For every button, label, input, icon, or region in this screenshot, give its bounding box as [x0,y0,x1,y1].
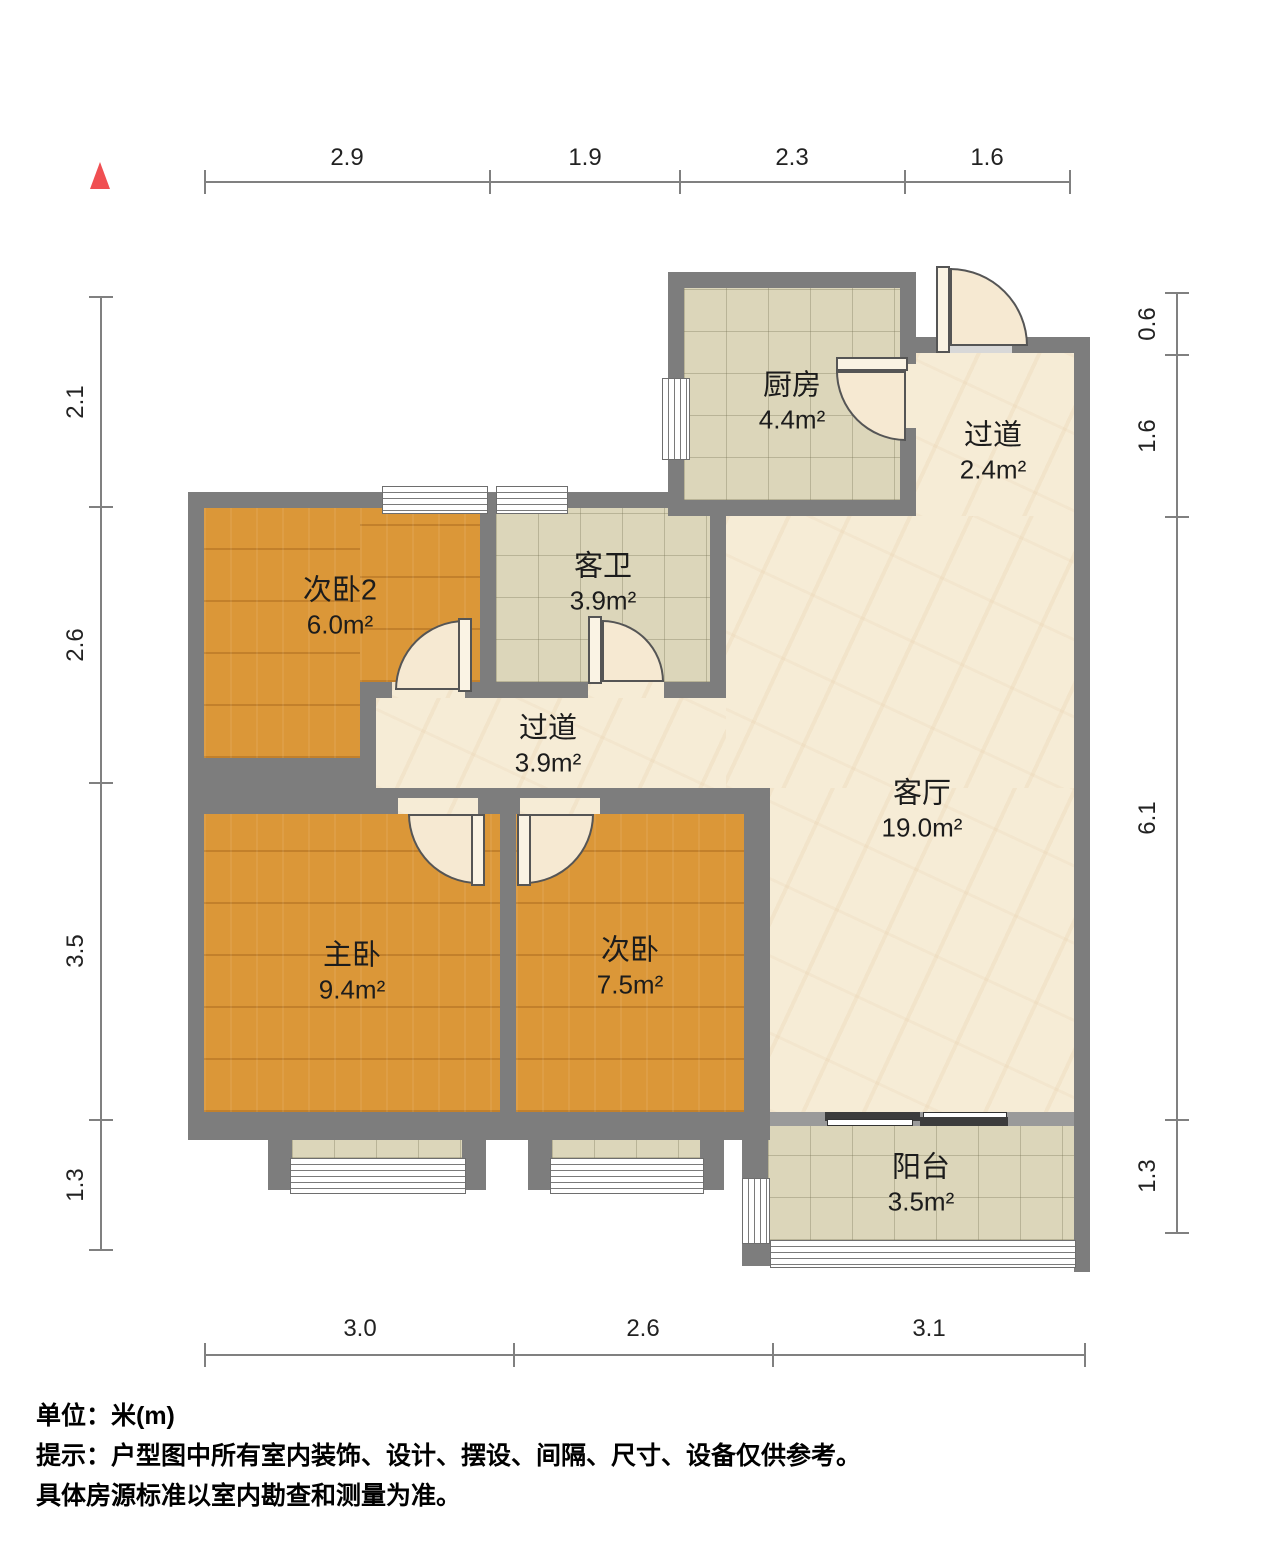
door-arc-entry [950,268,1028,346]
floor-bay-sill-bedroom [552,1140,700,1158]
room-name-living: 客厅 [882,776,963,812]
dim-tick [1165,1232,1189,1234]
floor-living-upper [726,516,1074,788]
room-label-master: 主卧 9.4m² [319,938,385,1007]
dim-line-left [100,297,102,1250]
room-name-kitchen: 厨房 [759,368,825,404]
room-name-bedroom: 次卧 [597,933,663,969]
room-label-living: 客厅 19.0m² [882,776,963,845]
wall-hall-top-c [664,682,726,698]
wall-balcony-left-upper [742,1126,768,1178]
dim-label-bottom-0: 3.0 [330,1315,390,1343]
wall-bedroom2-bottom [188,758,376,788]
dim-tick [204,170,206,194]
window-top-bedroom2 [382,486,488,514]
room-area-living: 19.0m² [882,812,963,845]
dim-tick [679,170,681,194]
wall-bedroom-right [744,788,770,1140]
dim-label-right-0: 0.6 [1134,294,1162,354]
dim-label-left-3: 1.3 [62,1155,90,1215]
note-tip-line2: 具体房源标准以室内勘查和测量为准。 [36,1476,861,1516]
window-balcony-left [742,1178,770,1244]
room-label-guest-bath: 客卫 3.9m² [570,549,636,618]
dim-tick [1165,516,1189,518]
wall-left-exterior [188,492,204,1140]
dim-tick [489,170,491,194]
room-area-kitchen: 4.4m² [759,404,825,437]
room-label-bedroom2: 次卧2 6.0m² [303,573,377,642]
room-name-balcony: 阳台 [888,1150,954,1186]
dim-tick [89,1119,113,1121]
dim-label-top-2: 2.3 [762,144,822,172]
floor-door-gap-bath [588,682,664,698]
window-bay-master [290,1158,466,1194]
dim-tick [89,782,113,784]
floor-bay-sill-master [292,1140,462,1158]
dim-label-right-2: 6.1 [1134,788,1162,848]
room-label-entry-hall: 过道 2.4m² [960,418,1026,487]
room-area-entry-hall: 2.4m² [960,454,1026,487]
dim-label-left-0: 2.1 [62,372,90,432]
dim-label-bottom-1: 2.6 [613,1315,673,1343]
room-name-guest-bath: 客卫 [570,549,636,585]
room-area-bedroom: 7.5m² [597,969,663,1002]
room-label-kitchen: 厨房 4.4m² [759,368,825,437]
dim-tick [1165,354,1189,356]
wall-bay-master-left [268,1140,292,1190]
dim-tick [89,296,113,298]
wall-kitchen-top [668,272,916,288]
room-area-balcony: 3.5m² [888,1186,954,1219]
note-unit: 单位：米(m) [36,1396,861,1436]
footer-notes: 单位：米(m) 提示：户型图中所有室内装饰、设计、摆设、间隔、尺寸、设备仅供参考… [36,1396,861,1516]
dim-tick [204,1343,206,1367]
window-top-bath [496,486,568,514]
wall-bath-right [710,508,726,698]
north-triangle-icon [90,162,110,189]
dim-line-top [205,181,1071,183]
wall-divider-master-bedroom [500,788,516,1112]
wall-kitchen-bottom [668,500,916,516]
door-leaf-guest-bath [588,616,602,684]
dim-tick [1084,1343,1086,1367]
room-name-inner-hall: 过道 [515,711,581,747]
wall-bedroom-top-sliver [520,788,600,798]
room-label-bedroom: 次卧 7.5m² [597,933,663,1002]
window-kitchen-left [662,378,690,460]
wall-kitchen-right-upper [900,272,916,364]
wall-balcony-left-corner [742,1242,770,1266]
wall-kitchen-right-lower [900,428,916,516]
window-bay-bedroom [550,1158,704,1194]
room-name-master: 主卧 [319,938,385,974]
dim-line-bottom [205,1354,1086,1356]
window-balcony-bottom [770,1240,1076,1268]
wall-hall-top-b [465,682,588,698]
dim-label-top-0: 2.9 [317,144,377,172]
dim-tick [1069,170,1071,194]
room-name-bedroom2: 次卧2 [303,573,377,609]
room-label-inner-hall: 过道 3.9m² [515,711,581,780]
dim-tick [513,1343,515,1367]
door-leaf-entry [936,266,950,353]
dim-label-right-1: 1.6 [1134,406,1162,466]
dim-tick [772,1343,774,1367]
dim-tick [1165,292,1189,294]
floor-plan-canvas: 厨房 4.4m² 过道 2.4m² 次卧2 6.0m² 客卫 3.9m² 过道 … [0,0,1274,1542]
room-area-bedroom2: 6.0m² [303,609,377,642]
dim-tick [904,170,906,194]
room-label-balcony: 阳台 3.5m² [888,1150,954,1219]
room-area-guest-bath: 3.9m² [570,585,636,618]
room-area-master: 9.4m² [319,974,385,1007]
wall-right-exterior [1074,337,1090,1272]
wall-bottom-bedrooms [188,1112,770,1140]
room-area-inner-hall: 3.9m² [515,747,581,780]
wall-divider-bedroom2-bath [480,508,496,698]
sliding-door-panel-dark-right [920,1117,1008,1126]
wall-master-top-a [188,788,398,814]
wall-hall-top-a [360,682,392,698]
dim-line-right [1176,293,1178,1233]
door-leaf-kitchen [836,357,908,371]
note-tip-line1: 提示：户型图中所有室内装饰、设计、摆设、间隔、尺寸、设备仅供参考。 [36,1436,861,1476]
dim-label-top-1: 1.9 [555,144,615,172]
door-leaf-bedroom [517,814,531,886]
dim-label-left-1: 2.6 [62,615,90,675]
door-leaf-master [471,814,485,886]
dim-label-left-2: 3.5 [62,921,90,981]
wall-master-top-sliver [398,788,478,798]
wall-bay-bedroom-left [528,1140,552,1190]
dim-tick [1165,1119,1189,1121]
room-name-entry-hall: 过道 [960,418,1026,454]
dim-tick [89,1249,113,1251]
dim-tick [89,506,113,508]
door-leaf-bedroom2 [458,618,472,692]
dim-label-right-3: 1.3 [1134,1146,1162,1206]
sliding-door-panel-white-left [827,1119,913,1126]
dim-label-top-3: 1.6 [957,144,1017,172]
dim-label-bottom-2: 3.1 [899,1315,959,1343]
